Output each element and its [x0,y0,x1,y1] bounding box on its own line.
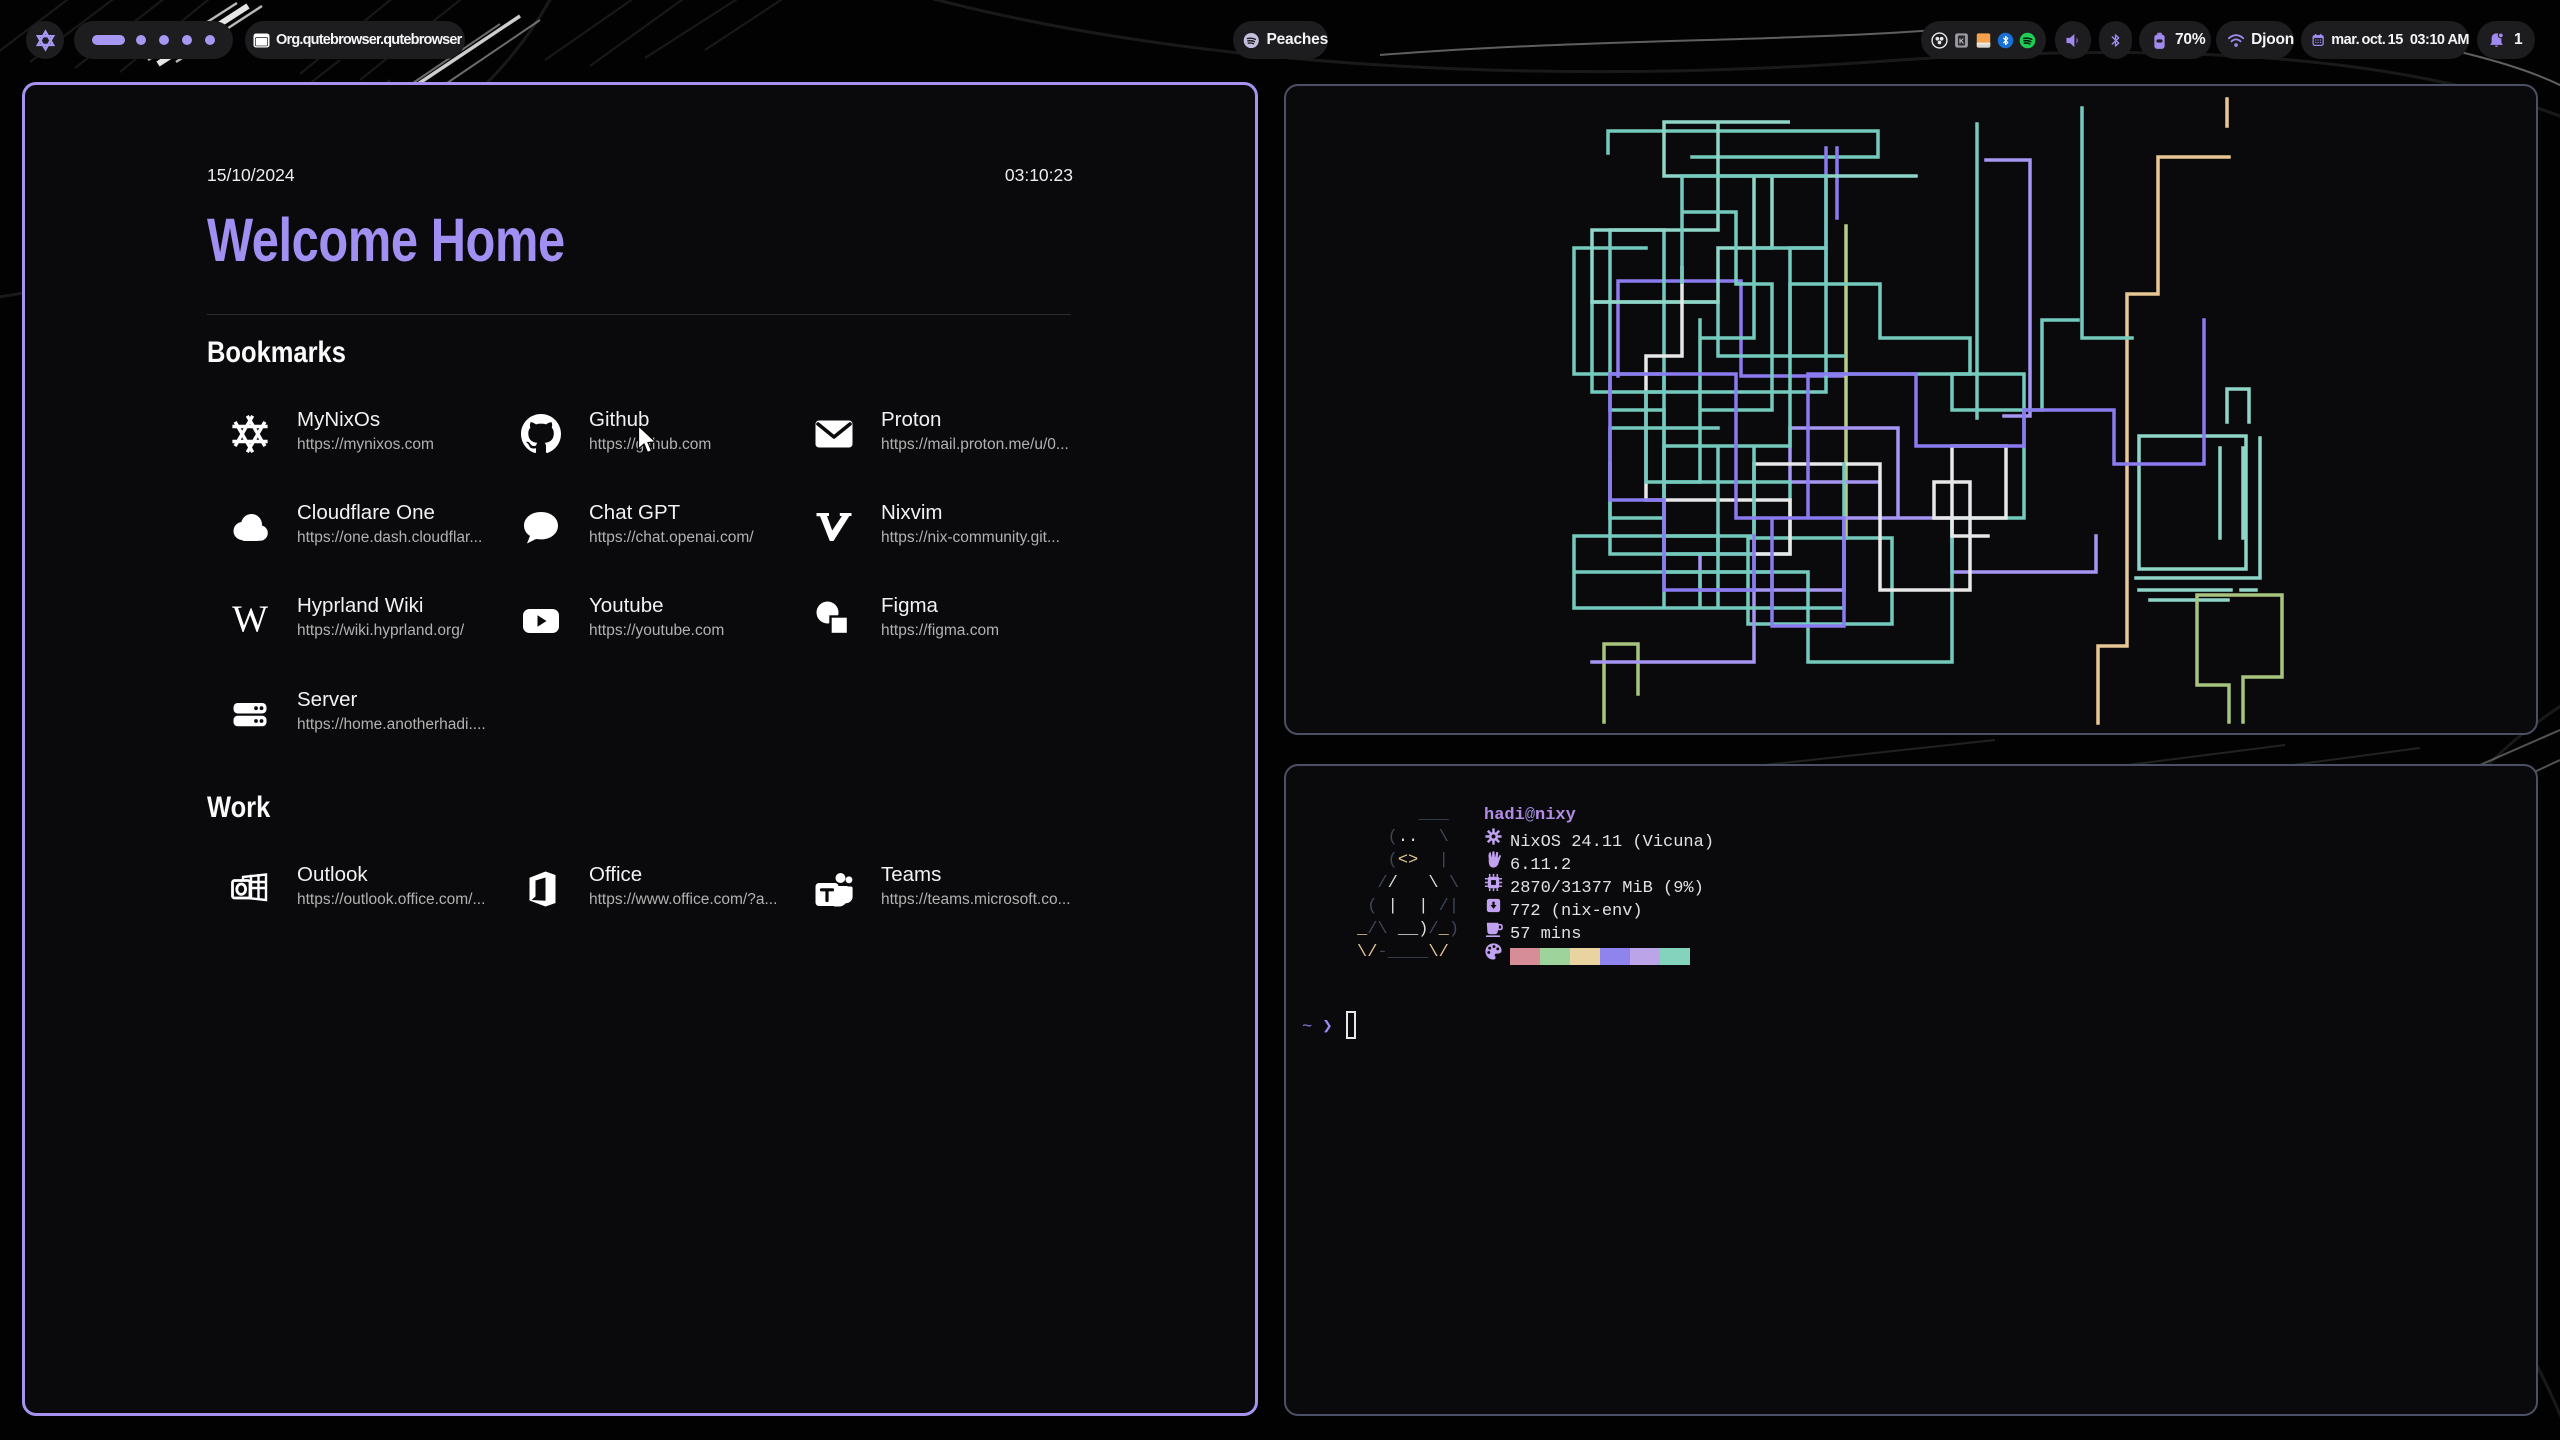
svg-text:W: W [232,600,268,640]
